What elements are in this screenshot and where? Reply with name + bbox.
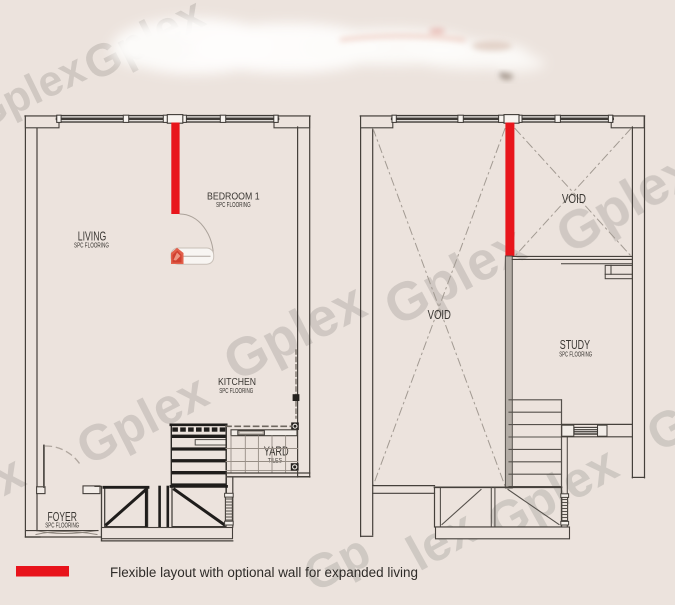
svg-text:LIVING: LIVING <box>78 229 107 244</box>
svg-text:SPC FLOORING: SPC FLOORING <box>559 352 592 359</box>
svg-text:VOID: VOID <box>428 307 451 322</box>
svg-text:SPC FLOORING: SPC FLOORING <box>216 202 251 209</box>
svg-text:YARD: YARD <box>264 444 289 459</box>
svg-text:SPC FLOORING: SPC FLOORING <box>45 523 79 530</box>
svg-text:SPC FLOORING: SPC FLOORING <box>219 388 253 395</box>
svg-text:BEDROOM 1: BEDROOM 1 <box>207 191 260 203</box>
svg-text:VOID: VOID <box>562 191 586 206</box>
svg-text:Flexible layout with optional: Flexible layout with optional wall for e… <box>110 565 418 581</box>
svg-text:SPC FLOORING: SPC FLOORING <box>74 243 109 250</box>
svg-text:KITCHEN: KITCHEN <box>218 376 256 388</box>
svg-text:STUDY: STUDY <box>560 338 591 352</box>
